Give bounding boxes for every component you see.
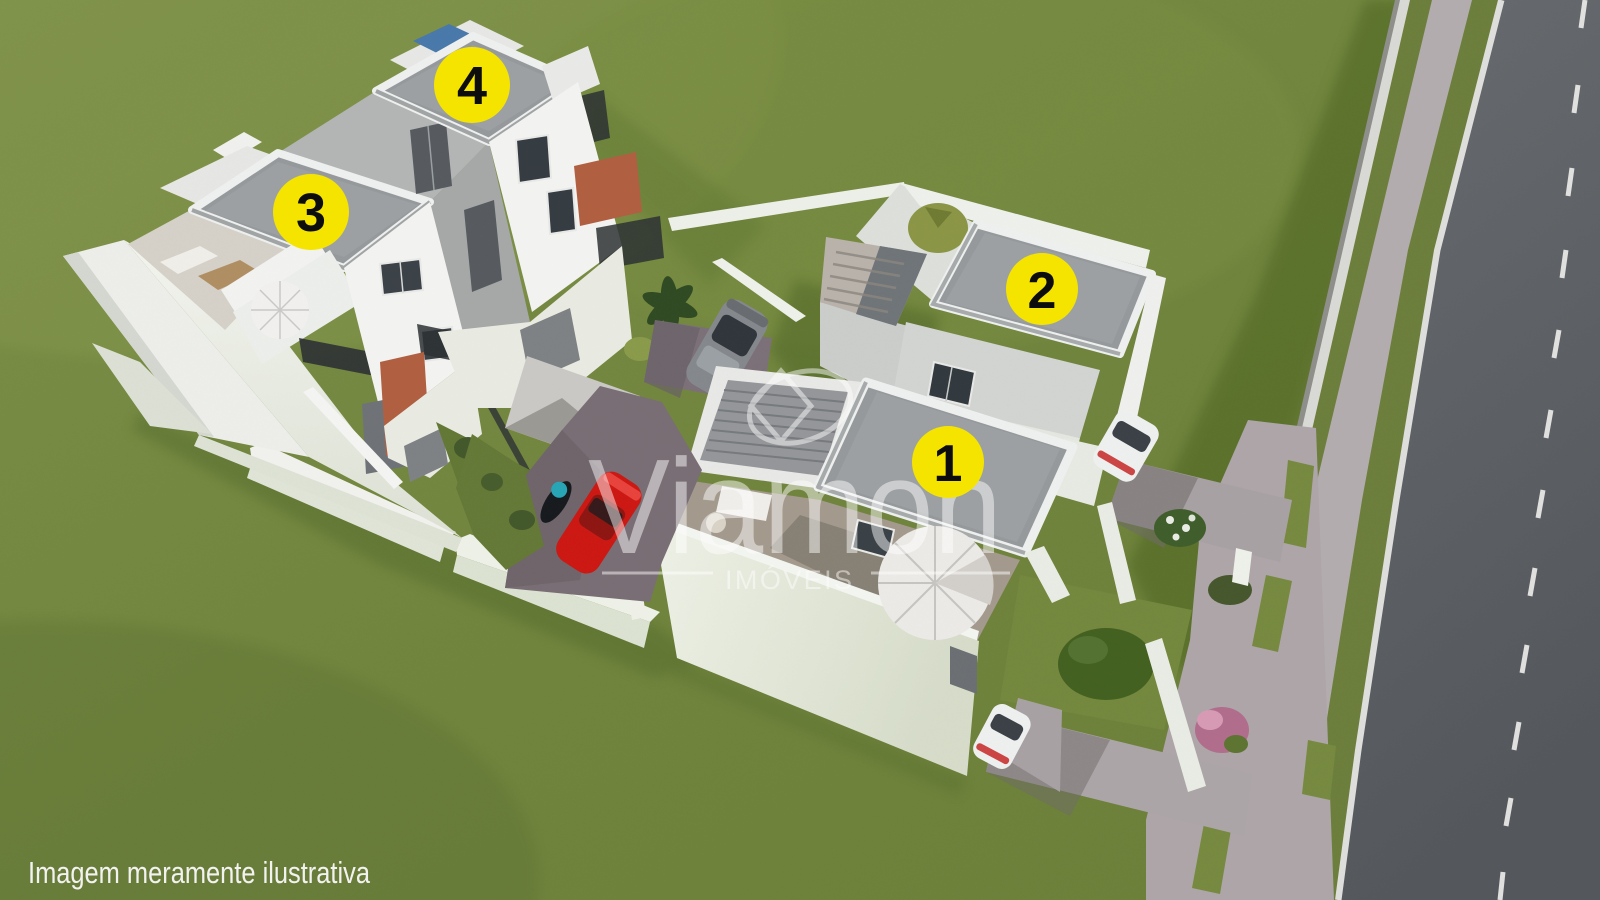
svg-text:2: 2 [1028, 262, 1057, 320]
svg-text:IMÓVEIS: IMÓVEIS [725, 564, 859, 595]
svg-text:3: 3 [296, 183, 326, 243]
svg-text:Imagem meramente ilustrativa: Imagem meramente ilustrativa [28, 855, 371, 890]
svg-text:1: 1 [934, 435, 963, 493]
svg-text:4: 4 [457, 56, 487, 116]
